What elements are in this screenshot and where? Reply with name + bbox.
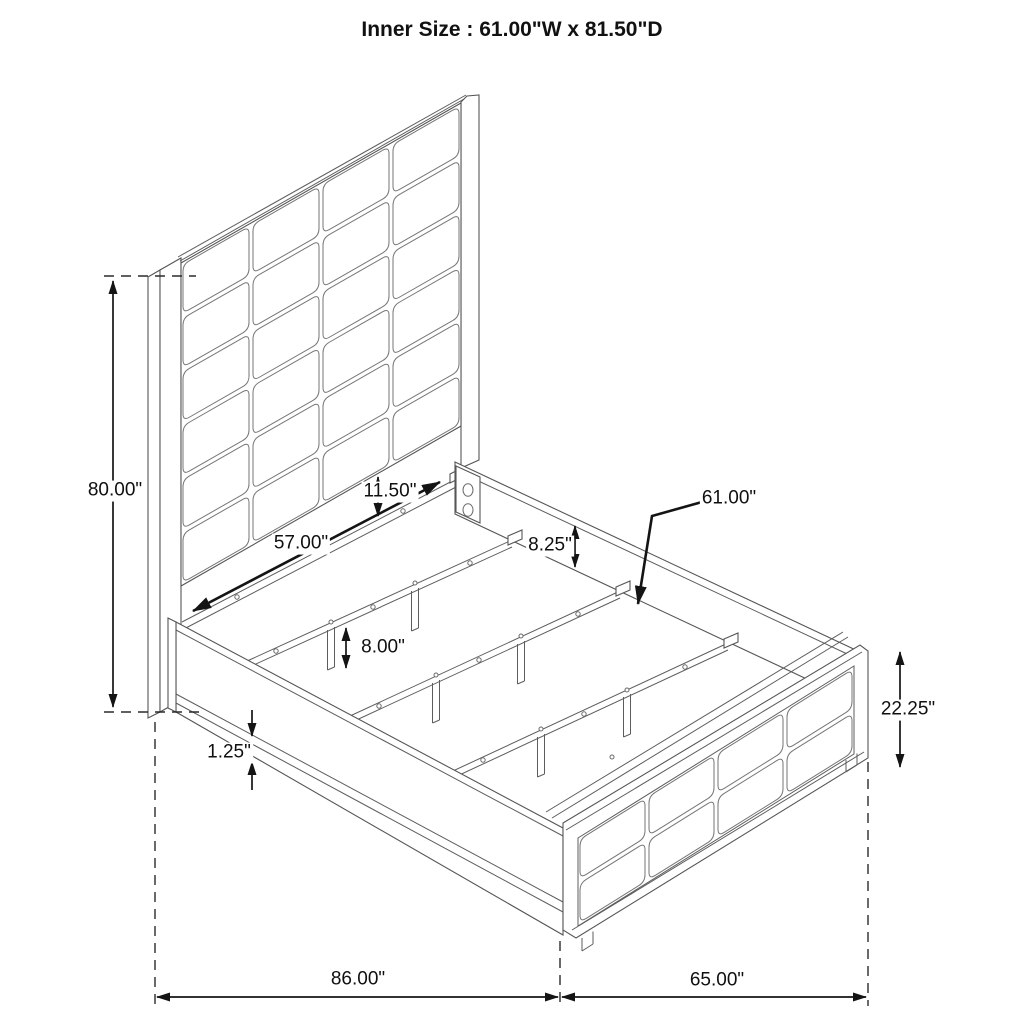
bracket-hole — [463, 484, 473, 496]
bed-dimension-diagram: Inner Size : 61.00"W x 81.50"D 80.00" 57… — [0, 0, 1024, 1024]
dim-headboard-panel-gap-label: 11.50" — [362, 482, 419, 503]
footboard — [546, 632, 868, 951]
dim-headboard-height-label: 80.00" — [86, 481, 144, 502]
dim-overall-depth-label: 86.00" — [329, 970, 387, 991]
support-leg — [412, 581, 419, 631]
bed-line-drawing — [0, 0, 1024, 1024]
support-leg — [538, 727, 545, 777]
dim-slat-length-label: 61.00" — [700, 489, 758, 510]
headboard-left-post — [148, 270, 160, 718]
dim-overall-width-label: 65.00" — [688, 971, 746, 992]
footboard-leg — [582, 932, 593, 952]
dim-inner-rail-width-label: 57.00" — [272, 534, 330, 555]
dim-rail-lip-label: 1.25" — [205, 743, 253, 764]
left-side-rail — [168, 618, 563, 935]
right-side-rail — [455, 462, 860, 704]
support-leg — [433, 673, 440, 723]
dim-rail-to-slat-label: 8.25" — [526, 536, 574, 557]
dim-leg-height-label: 8.00" — [359, 638, 407, 659]
diagram-title: Inner Size : 61.00"W x 81.50"D — [361, 18, 662, 42]
bracket-hole — [463, 504, 473, 516]
dim-footboard-height-label: 22.25" — [879, 700, 937, 721]
headboard — [148, 95, 479, 718]
support-leg — [328, 620, 335, 670]
headboard-right-post — [461, 95, 479, 468]
support-leg — [518, 634, 525, 684]
